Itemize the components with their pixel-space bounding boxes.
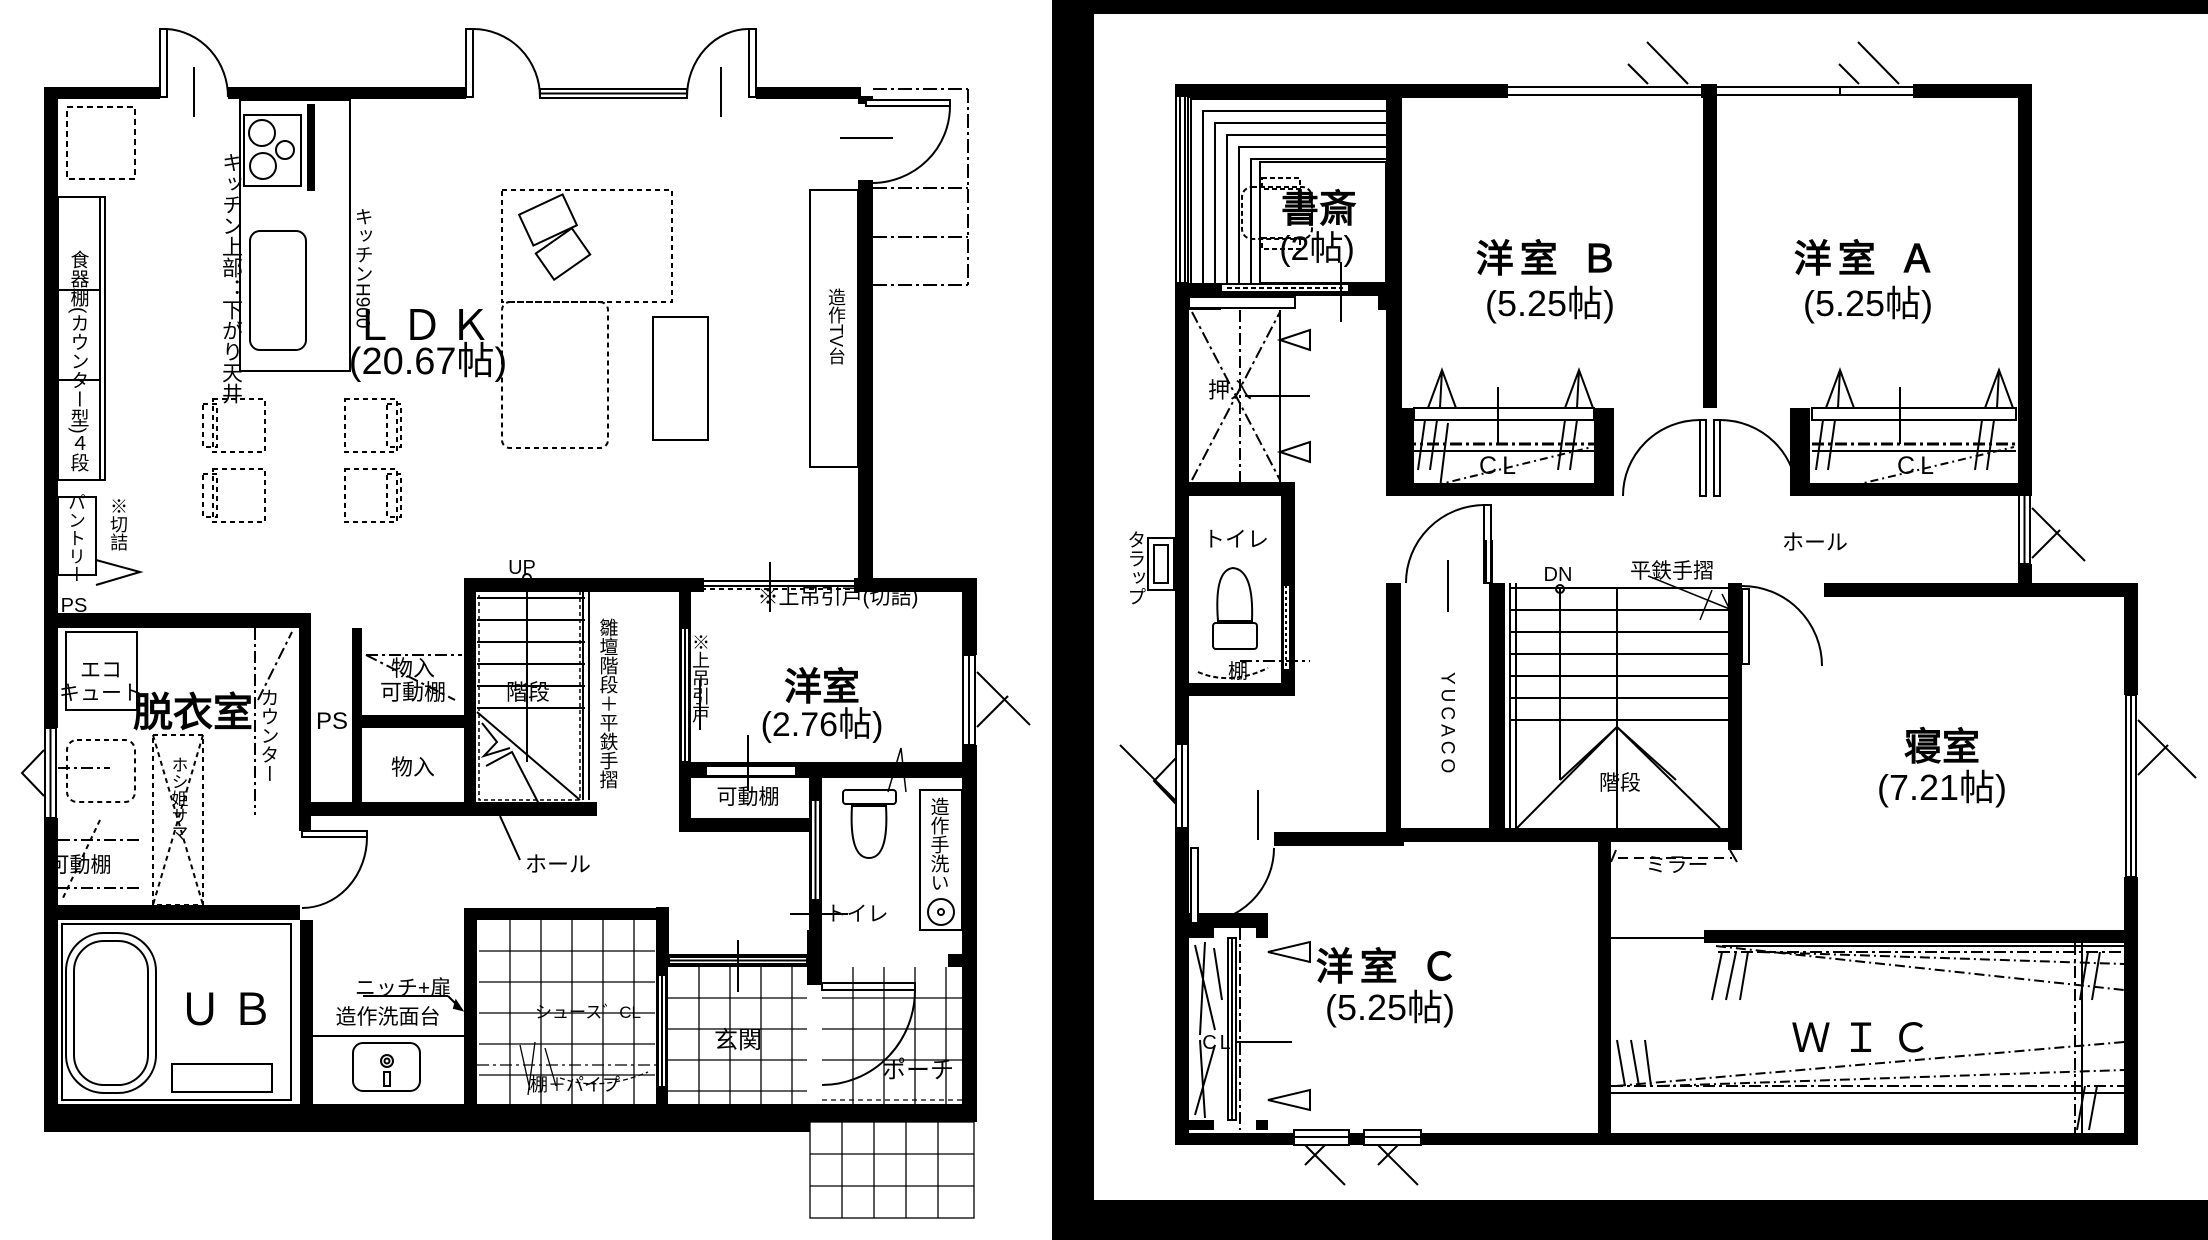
svg-text:キッチン上部：下がり天井: キッチン上部：下がり天井 xyxy=(220,152,244,404)
svg-text:YUCACO: YUCACO xyxy=(1437,672,1458,777)
svg-text:平鉄手摺: 平鉄手摺 xyxy=(1630,560,1714,583)
svg-text:(5.25帖): (5.25帖) xyxy=(1325,987,1455,1028)
svg-text:ホール: ホール xyxy=(1782,530,1848,555)
svg-text:ＵＢ: ＵＢ xyxy=(178,986,282,1035)
svg-text:階段: 階段 xyxy=(1599,772,1641,795)
svg-text:洋室 Ａ: 洋室 Ａ xyxy=(1794,238,1943,281)
svg-text:洋室 Ｃ: 洋室 Ｃ xyxy=(1316,946,1465,989)
svg-text:パントリー: パントリー xyxy=(66,493,86,583)
svg-text:押入: 押入 xyxy=(1208,378,1252,403)
svg-text:PS: PS xyxy=(316,708,348,735)
svg-text:※切詰: ※切詰 xyxy=(108,497,128,551)
svg-text:CL: CL xyxy=(1479,452,1521,480)
svg-text:CL: CL xyxy=(1897,452,1939,480)
svg-text:ＷＩＣ: ＷＩＣ xyxy=(1791,1017,1941,1061)
svg-text:階段: 階段 xyxy=(506,680,550,705)
svg-text:造作手洗い: 造作手洗い xyxy=(928,797,950,892)
svg-text:ホール: ホール xyxy=(525,852,591,877)
svg-text:物入: 物入 xyxy=(391,656,435,681)
svg-text:ミラー: ミラー xyxy=(1646,854,1709,877)
svg-text:カウンター: カウンター xyxy=(258,688,279,783)
svg-text:※上吊引戸(切詰): ※上吊引戸(切詰) xyxy=(758,586,919,609)
svg-text:トイレ: トイレ xyxy=(1203,527,1269,552)
svg-text:玄関: 玄関 xyxy=(714,1027,762,1054)
svg-text:可動棚: 可動棚 xyxy=(717,786,780,809)
svg-text:(20.67帖): (20.67帖) xyxy=(349,341,507,383)
svg-text:UP: UP xyxy=(508,557,536,579)
svg-text:※上吊引戸: ※上吊引戸 xyxy=(690,633,710,723)
svg-text:脱衣室: 脱衣室 xyxy=(133,691,253,735)
svg-text:DN: DN xyxy=(1544,564,1573,586)
svg-text:エコ: エコ xyxy=(80,659,122,682)
svg-text:キッチンH900: キッチンH900 xyxy=(352,207,373,328)
svg-text:造作TV台: 造作TV台 xyxy=(826,288,846,365)
svg-text:(5.25帖): (5.25帖) xyxy=(1485,283,1615,324)
svg-text:PS: PS xyxy=(61,595,88,617)
svg-text:棚: 棚 xyxy=(1228,660,1248,683)
svg-text:造作洗面台: 造作洗面台 xyxy=(336,1006,441,1029)
svg-text:物入: 物入 xyxy=(391,755,435,780)
svg-text:(5.25帖): (5.25帖) xyxy=(1803,283,1933,324)
svg-text:(7.21帖): (7.21帖) xyxy=(1877,767,2007,808)
svg-text:(2.76帖): (2.76帖) xyxy=(761,706,884,744)
svg-text:棚＋パイプ: 棚＋パイプ xyxy=(530,1075,620,1095)
svg-text:タラップ: タラップ xyxy=(1125,530,1146,606)
svg-text:CL: CL xyxy=(1202,1032,1234,1054)
svg-text:可動棚: 可動棚 xyxy=(380,680,446,705)
svg-text:寝室: 寝室 xyxy=(1904,726,1980,769)
svg-text:キュート: キュート xyxy=(59,682,143,705)
svg-text:シュース゛CL: シュース゛CL xyxy=(535,1003,641,1022)
svg-text:書斎: 書斎 xyxy=(1281,189,1357,231)
svg-text:ニッチ+扉: ニッチ+扉 xyxy=(355,977,451,1000)
svg-text:洋室 Ｂ: 洋室 Ｂ xyxy=(1476,238,1625,281)
svg-text:雛壇階段＋平鉄手摺: 雛壇階段＋平鉄手摺 xyxy=(597,618,619,789)
svg-text:食器棚(カウンター型)４段: 食器棚(カウンター型)４段 xyxy=(68,250,90,472)
svg-text:トイレ: トイレ xyxy=(826,903,889,926)
svg-text:(2帖): (2帖) xyxy=(1279,230,1355,268)
svg-text:ポーチ: ポーチ xyxy=(882,1057,954,1084)
svg-text:可動棚: 可動棚 xyxy=(49,854,112,877)
svg-text:洋室: 洋室 xyxy=(784,666,860,709)
svg-text:ホシ姫サマ: ホシ姫サマ xyxy=(169,756,189,841)
